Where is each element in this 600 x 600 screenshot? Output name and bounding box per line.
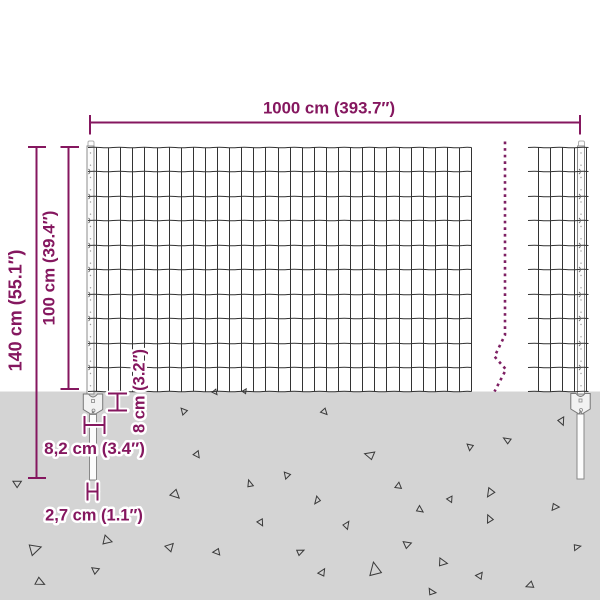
svg-text:2,7 cm (1.1″): 2,7 cm (1.1″) <box>45 507 143 525</box>
svg-text:1000 cm (393.7″): 1000 cm (393.7″) <box>263 99 395 118</box>
svg-text:100 cm (39.4″): 100 cm (39.4″) <box>40 211 59 326</box>
svg-text:8,2 cm (3.4″): 8,2 cm (3.4″) <box>44 439 145 458</box>
svg-text:8 cm (3.2″): 8 cm (3.2″) <box>131 349 149 433</box>
svg-text:140 cm (55.1″): 140 cm (55.1″) <box>6 250 26 372</box>
